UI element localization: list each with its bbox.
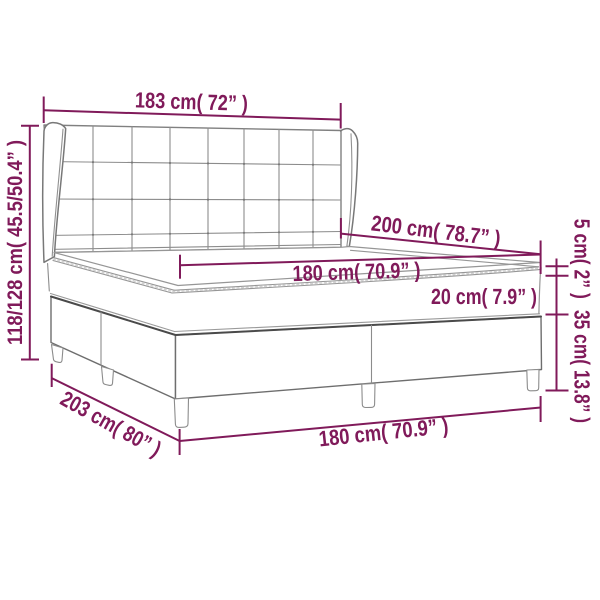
svg-text:180 cm( 70.9” ): 180 cm( 70.9” ): [318, 413, 450, 451]
svg-text:35 cm( 13.8” ): 35 cm( 13.8” ): [569, 310, 594, 423]
svg-text:183 cm( 72” ): 183 cm( 72” ): [135, 87, 249, 116]
svg-text:180 cm( 70.9” ): 180 cm( 70.9” ): [292, 257, 421, 286]
svg-text:118/128 cm( 45.5/50.4” ): 118/128 cm( 45.5/50.4” ): [4, 140, 27, 345]
svg-text:20 cm( 7.9” ): 20 cm( 7.9” ): [431, 284, 537, 309]
svg-text:203 cm( 80” ): 203 cm( 80” ): [56, 386, 165, 462]
svg-text:200 cm( 78.7” ): 200 cm( 78.7” ): [370, 210, 502, 251]
svg-text:5 cm( 2” ): 5 cm( 2” ): [569, 219, 594, 299]
